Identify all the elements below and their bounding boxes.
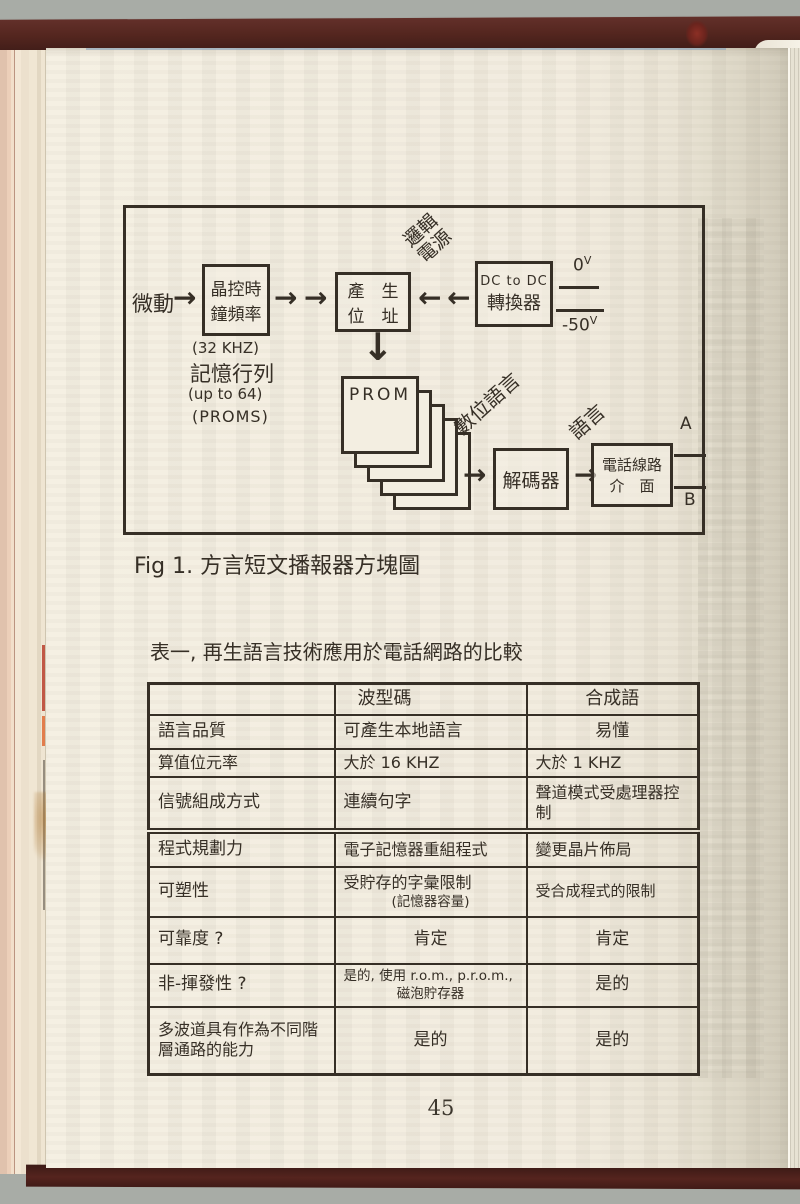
rail-1-unit: V xyxy=(590,314,598,327)
row-label: 語言品質 xyxy=(149,715,335,749)
fore-edge-page-stack xyxy=(0,50,46,1174)
cell-synth: 受合成程式的限制 xyxy=(527,867,699,917)
book-page: 微動 → 晶控時 鐘頻率 → → 產 生 位 址 ← ← 邏輯 電源 DC to… xyxy=(46,48,788,1168)
arrow-right-icon: → xyxy=(463,461,486,489)
cell-waveform: 大於 16 KHZ xyxy=(335,749,527,777)
cell-synth: 肯定 xyxy=(527,917,699,964)
bleed-through-texture xyxy=(698,218,764,1078)
rail-1-value: -50 xyxy=(562,316,590,336)
arrow-left-icon: ← xyxy=(418,284,441,312)
decoder-box: 解碼器 xyxy=(493,448,569,510)
line-b-label: B xyxy=(684,490,696,510)
speech-label: 語言 xyxy=(561,396,610,444)
row-label: 多波道具有作為不同階層通路的能力 xyxy=(149,1007,335,1075)
telephone-line-interface-box: 電話線路 介 面 xyxy=(591,443,673,507)
table-row: 多波道具有作為不同階層通路的能力 是的 是的 xyxy=(149,1007,699,1075)
clock-note-upto64: (up to 64) xyxy=(188,385,262,403)
trigger-label: 微動 xyxy=(132,288,174,318)
row-label: 可塑性 xyxy=(149,867,335,917)
header-synthesized: 合成語 xyxy=(527,684,699,715)
table-row: 可靠度 ? 肯定 肯定 xyxy=(149,917,699,964)
cell-waveform: 受貯存的字彙限制 (記憶器容量) xyxy=(335,867,527,917)
arrow-right-icon: → xyxy=(274,284,297,312)
row-label: 信號組成方式 xyxy=(149,777,335,831)
rail-line-neg50v xyxy=(556,309,604,312)
rail-label-neg50v: -50V xyxy=(562,314,597,336)
row-label: 算值位元率 xyxy=(149,749,335,777)
cell-synth: 變更晶片佈局 xyxy=(527,831,699,867)
edge-mark xyxy=(42,645,45,711)
rail-0-value: 0 xyxy=(573,256,584,276)
page-number: 45 xyxy=(401,1096,481,1120)
arrow-right-icon: → xyxy=(173,284,196,312)
cell-synth: 大於 1 KHZ xyxy=(527,749,699,777)
clock-note-32khz: (32 KHZ) xyxy=(192,339,259,357)
edge-mark xyxy=(42,716,45,746)
arrow-down-icon: ↓ xyxy=(362,328,394,366)
page-top-edge-line xyxy=(86,48,726,50)
table-row: 可塑性 受貯存的字彙限制 (記憶器容量) 受合成程式的限制 xyxy=(149,867,699,917)
address-box-line2: 位 址 xyxy=(348,302,399,327)
address-box-line1: 產 生 xyxy=(348,277,399,302)
row-label: 可靠度 ? xyxy=(149,917,335,964)
cell-waveform: 可產生本地語言 xyxy=(335,715,527,749)
cell-synth: 聲道模式受處理器控制 xyxy=(527,777,699,831)
cell-synth: 是的 xyxy=(527,964,699,1007)
line-a-label: A xyxy=(680,414,692,434)
book-photo: 微動 → 晶控時 鐘頻率 → → 產 生 位 址 ← ← 邏輯 電源 DC to… xyxy=(0,0,800,1204)
clock-box: 晶控時 鐘頻率 xyxy=(202,264,270,336)
cell-waveform: 肯定 xyxy=(335,917,527,964)
digital-speech-label: 數位語言 xyxy=(447,365,526,440)
rail-line-0v xyxy=(559,286,599,289)
arrow-left-icon: ← xyxy=(447,284,470,312)
memory-array-label: 記憶行列 xyxy=(190,358,274,388)
figure-caption: Fig 1. 方言短文播報器方塊圖 xyxy=(134,548,420,580)
rail-label-0v: 0V xyxy=(573,254,591,276)
dcdc-line2: 轉換器 xyxy=(487,289,541,315)
row-label: 程式規劃力 xyxy=(149,831,335,867)
arrow-right-icon: → xyxy=(304,284,327,312)
table-header-row: 波型碼 合成語 xyxy=(149,684,699,715)
line-b xyxy=(674,486,706,489)
clock-note-proms: (PROMS) xyxy=(192,407,269,426)
cell-waveform: 是的 xyxy=(335,1007,527,1075)
cell-waveform: 連續句字 xyxy=(335,777,527,831)
comparison-table: 波型碼 合成語 語言品質 可產生本地語言 易懂 算值位元率 大於 16 KHZ … xyxy=(147,682,700,1076)
line-a xyxy=(674,454,706,457)
prom-card-front: PROM xyxy=(341,376,419,454)
dcdc-line1: DC to DC xyxy=(480,274,548,289)
dc-dc-converter-box: DC to DC 轉換器 xyxy=(475,261,553,327)
cell-waveform-main: 受貯存的字彙限制 xyxy=(344,873,518,893)
book-cover-bottom-edge xyxy=(26,1165,800,1190)
logic-power-label: 邏輯 電源 xyxy=(400,211,456,267)
block-diagram: 微動 → 晶控時 鐘頻率 → → 產 生 位 址 ← ← 邏輯 電源 DC to… xyxy=(123,205,705,535)
cover-worn-spot xyxy=(686,21,708,47)
decoder-label: 解碼器 xyxy=(502,466,559,493)
clock-box-line2: 鐘頻率 xyxy=(211,300,262,325)
table-row: 程式規劃力 電子記憶器重組程式 變更晶片佈局 xyxy=(149,831,699,867)
header-empty xyxy=(149,684,335,715)
cell-waveform-note: 磁泡貯存器 xyxy=(344,986,518,1003)
clock-box-line1: 晶控時 xyxy=(211,275,262,300)
cell-waveform-note: (記憶器容量) xyxy=(344,894,518,911)
table-row: 算值位元率 大於 16 KHZ 大於 1 KHZ xyxy=(149,749,699,777)
cell-waveform: 電子記憶器重組程式 xyxy=(335,831,527,867)
header-waveform: 波型碼 xyxy=(335,684,527,715)
table-title: 表一, 再生語言技術應用於電話網路的比較 xyxy=(150,636,523,665)
row-label: 非-揮發性 ? xyxy=(149,964,335,1007)
table-row: 信號組成方式 連續句字 聲道模式受處理器控制 xyxy=(149,777,699,831)
rail-0-unit: V xyxy=(584,254,592,267)
table-row: 語言品質 可產生本地語言 易懂 xyxy=(149,715,699,749)
phone-box-line1: 電話線路 xyxy=(602,454,662,475)
table-row: 非-揮發性 ? 是的, 使用 r.o.m., p.r.o.m., 磁泡貯存器 是… xyxy=(149,964,699,1007)
address-generator-box: 產 生 位 址 xyxy=(335,272,411,332)
gutter-facing-page-edge xyxy=(788,48,800,1168)
cell-waveform-main: 是的, 使用 r.o.m., p.r.o.m., xyxy=(344,968,518,985)
phone-box-line2: 介 面 xyxy=(609,475,654,496)
cell-synth: 是的 xyxy=(527,1007,699,1075)
cell-synth: 易懂 xyxy=(527,715,699,749)
cell-waveform: 是的, 使用 r.o.m., p.r.o.m., 磁泡貯存器 xyxy=(335,964,527,1007)
prom-label: PROM xyxy=(344,385,416,405)
